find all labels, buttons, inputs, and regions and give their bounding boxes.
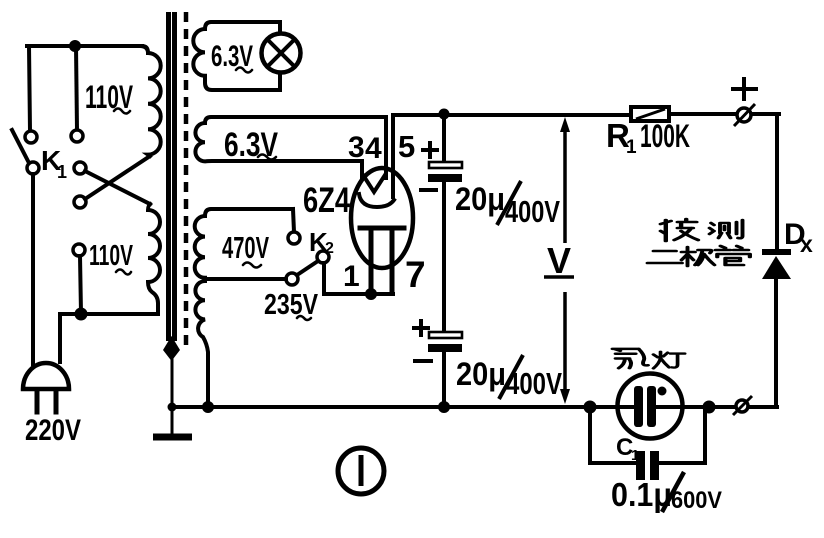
svg-text:1: 1 — [57, 162, 67, 182]
svg-text:5: 5 — [398, 129, 415, 164]
svg-text:20μ: 20μ — [455, 181, 505, 217]
svg-text:600V: 600V — [671, 487, 722, 514]
svg-text:6.3V: 6.3V — [211, 40, 253, 73]
svg-text:V: V — [547, 240, 571, 281]
svg-text:6Z4: 6Z4 — [303, 181, 350, 220]
svg-text:100K: 100K — [640, 118, 690, 154]
svg-text:470V: 470V — [222, 230, 269, 265]
svg-text:1: 1 — [626, 137, 637, 158]
svg-text:x: x — [800, 231, 813, 257]
svg-text:7: 7 — [405, 254, 426, 295]
svg-text:3: 3 — [348, 131, 365, 164]
svg-text:220V: 220V — [25, 414, 81, 447]
svg-text:400V: 400V — [505, 194, 560, 229]
svg-text:400V: 400V — [506, 366, 562, 401]
svg-text:4: 4 — [365, 132, 382, 165]
svg-text:1: 1 — [631, 447, 639, 464]
svg-text:235V: 235V — [264, 289, 319, 321]
svg-text:1: 1 — [343, 260, 360, 293]
svg-text:110V: 110V — [89, 240, 133, 272]
svg-text:20μ: 20μ — [456, 356, 506, 392]
svg-text:110V: 110V — [85, 79, 133, 115]
